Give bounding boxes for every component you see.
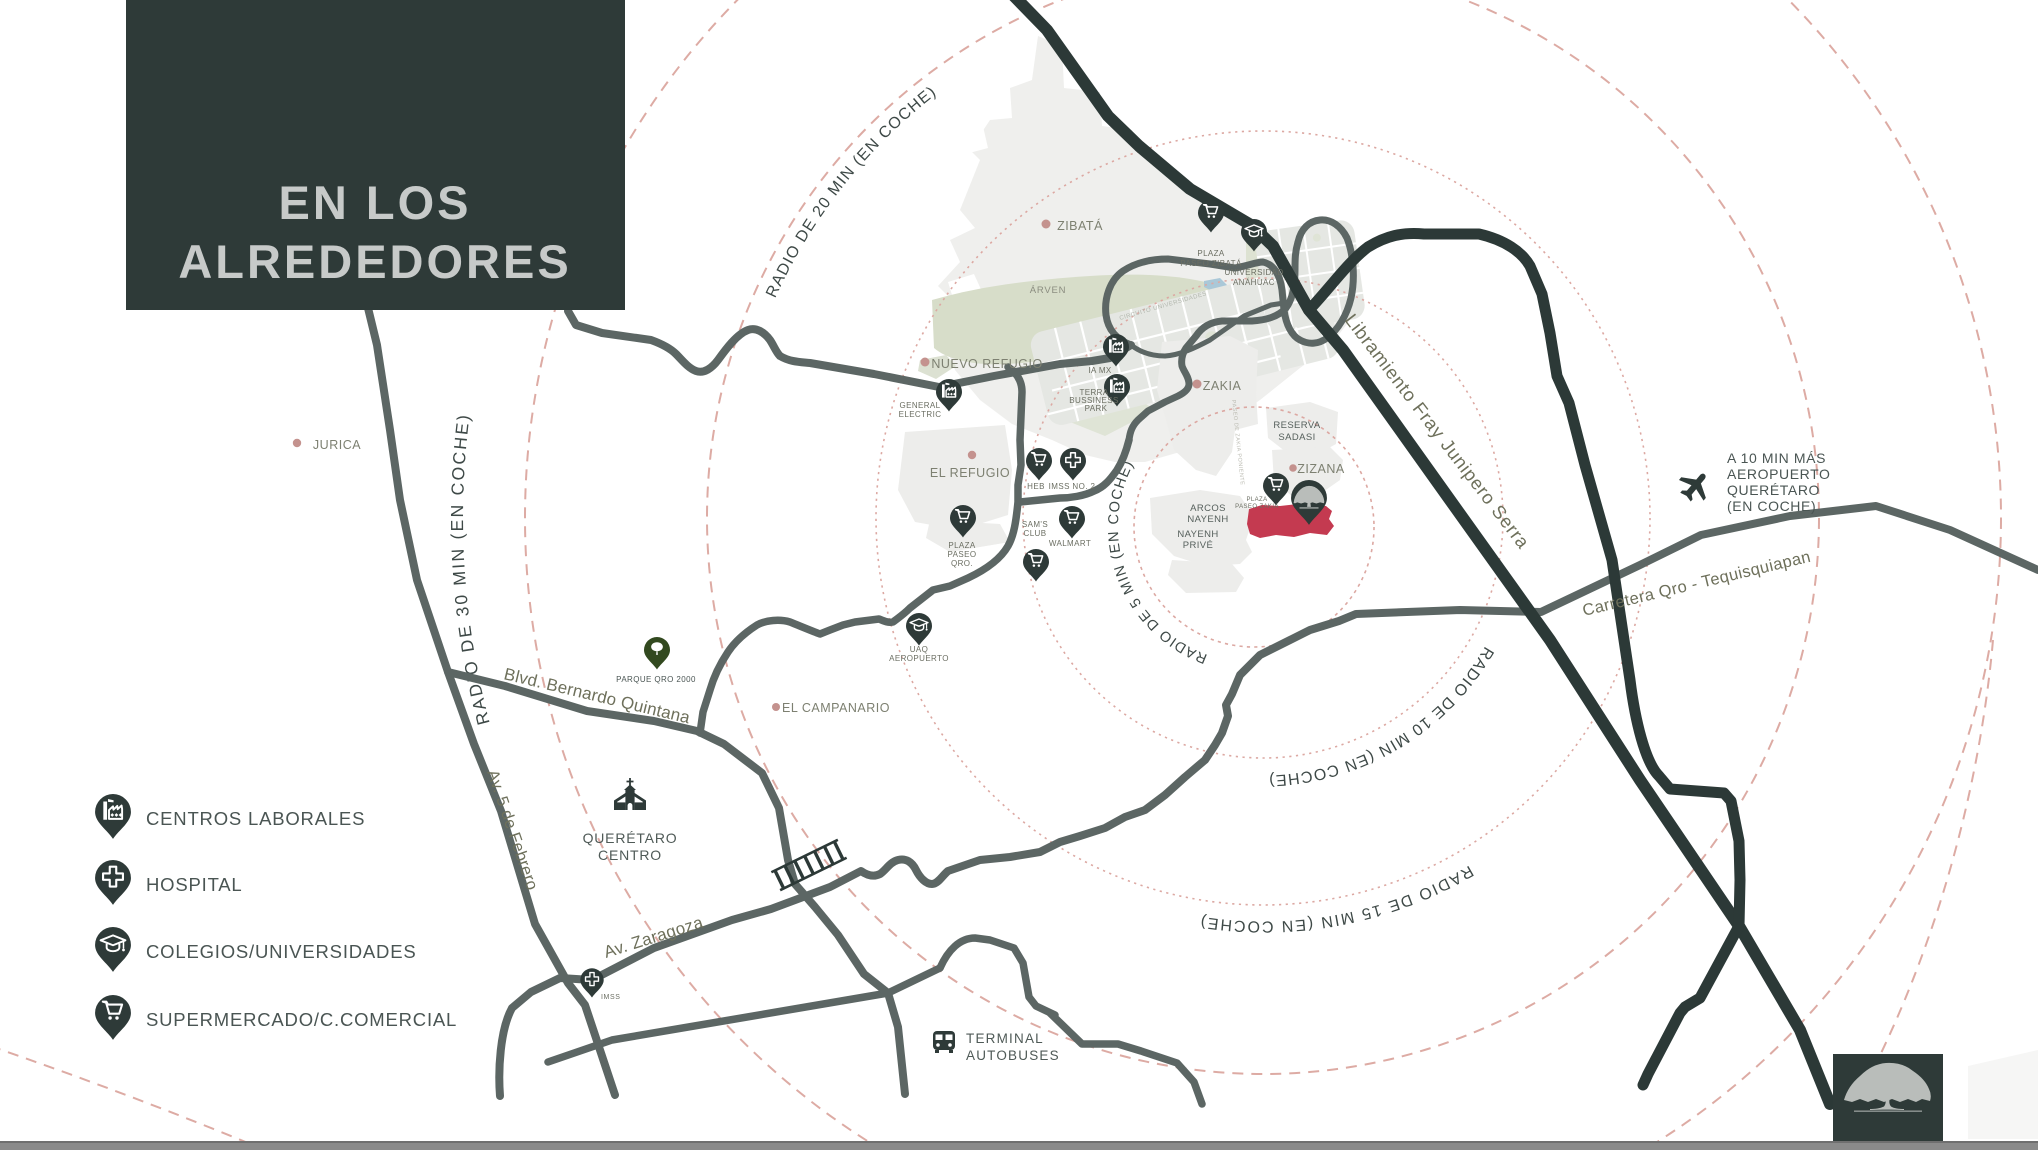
svg-text:PLAZA: PLAZA <box>1246 497 1267 503</box>
svg-text:SADASI: SADASI <box>1278 432 1315 443</box>
svg-text:PRIVÉ: PRIVÉ <box>1183 540 1214 551</box>
svg-text:COLEGIOS/UNIVERSIDADES: COLEGIOS/UNIVERSIDADES <box>146 941 417 962</box>
svg-text:CLUB: CLUB <box>1024 529 1047 538</box>
svg-text:ZIBATÁ: ZIBATÁ <box>1057 218 1103 233</box>
svg-text:PLAZA: PLAZA <box>1197 249 1225 258</box>
svg-text:ANÁHUAC: ANÁHUAC <box>1233 278 1275 287</box>
svg-text:ZIZANA: ZIZANA <box>1297 462 1345 476</box>
svg-text:EL CAMPANARIO: EL CAMPANARIO <box>782 701 890 715</box>
svg-text:RESERVA: RESERVA <box>1273 420 1321 431</box>
svg-text:AEROPUERTO: AEROPUERTO <box>889 654 949 663</box>
svg-text:(EN COCHE): (EN COCHE) <box>1727 498 1816 514</box>
svg-text:HEB: HEB <box>1027 482 1045 491</box>
svg-text:CENTROS LABORALES: CENTROS LABORALES <box>146 808 365 829</box>
svg-text:TERMINAL: TERMINAL <box>966 1031 1044 1046</box>
svg-text:A 10 MIN MÁS: A 10 MIN MÁS <box>1727 450 1826 466</box>
svg-text:GENERAL: GENERAL <box>899 401 940 410</box>
svg-text:EN LOS: EN LOS <box>279 176 472 229</box>
svg-text:PLAZA: PLAZA <box>948 541 976 550</box>
svg-text:AEROPUERTO: AEROPUERTO <box>1727 466 1831 482</box>
svg-text:ARCOS: ARCOS <box>1190 503 1226 514</box>
svg-text:EL REFUGIO: EL REFUGIO <box>930 466 1010 480</box>
svg-text:NAYENH: NAYENH <box>1187 514 1228 525</box>
svg-text:IMSS NO. 2: IMSS NO. 2 <box>1049 482 1096 491</box>
svg-text:UNIVERSIDAD: UNIVERSIDAD <box>1224 268 1283 277</box>
svg-text:PASEO ZAKIA: PASEO ZAKIA <box>1235 504 1279 510</box>
svg-text:ZAKIA: ZAKIA <box>1203 379 1242 393</box>
svg-text:HOSPITAL: HOSPITAL <box>146 874 243 895</box>
svg-text:NAYENH: NAYENH <box>1177 529 1218 540</box>
svg-text:ÁRVEN: ÁRVEN <box>1030 285 1067 296</box>
svg-text:UAQ: UAQ <box>910 645 929 654</box>
svg-text:ALREDEDORES: ALREDEDORES <box>178 235 571 288</box>
svg-text:QUERÉTARO: QUERÉTARO <box>1727 482 1820 498</box>
svg-text:QUERÉTARO: QUERÉTARO <box>583 830 678 846</box>
svg-text:WALMART: WALMART <box>1049 539 1091 548</box>
svg-text:NUEVO REFUGIO: NUEVO REFUGIO <box>931 357 1042 371</box>
svg-text:SUPERMERCADO/C.COMERCIAL: SUPERMERCADO/C.COMERCIAL <box>146 1009 457 1030</box>
svg-text:JURICA: JURICA <box>313 438 361 452</box>
svg-text:AUTOBUSES: AUTOBUSES <box>966 1048 1060 1063</box>
svg-text:IA MX: IA MX <box>1088 366 1112 375</box>
svg-text:PARQUE QRO 2000: PARQUE QRO 2000 <box>616 675 696 684</box>
svg-text:SAM'S: SAM'S <box>1022 520 1048 529</box>
svg-text:CENTRO: CENTRO <box>598 847 662 863</box>
svg-text:PASEO: PASEO <box>948 550 977 559</box>
svg-text:PASEO ZIBATÁ: PASEO ZIBATÁ <box>1180 259 1242 268</box>
svg-text:QRO.: QRO. <box>951 559 973 568</box>
svg-text:PARK: PARK <box>1085 404 1108 413</box>
svg-text:IMSS: IMSS <box>601 994 621 1001</box>
svg-text:ELECTRIC: ELECTRIC <box>899 410 942 419</box>
